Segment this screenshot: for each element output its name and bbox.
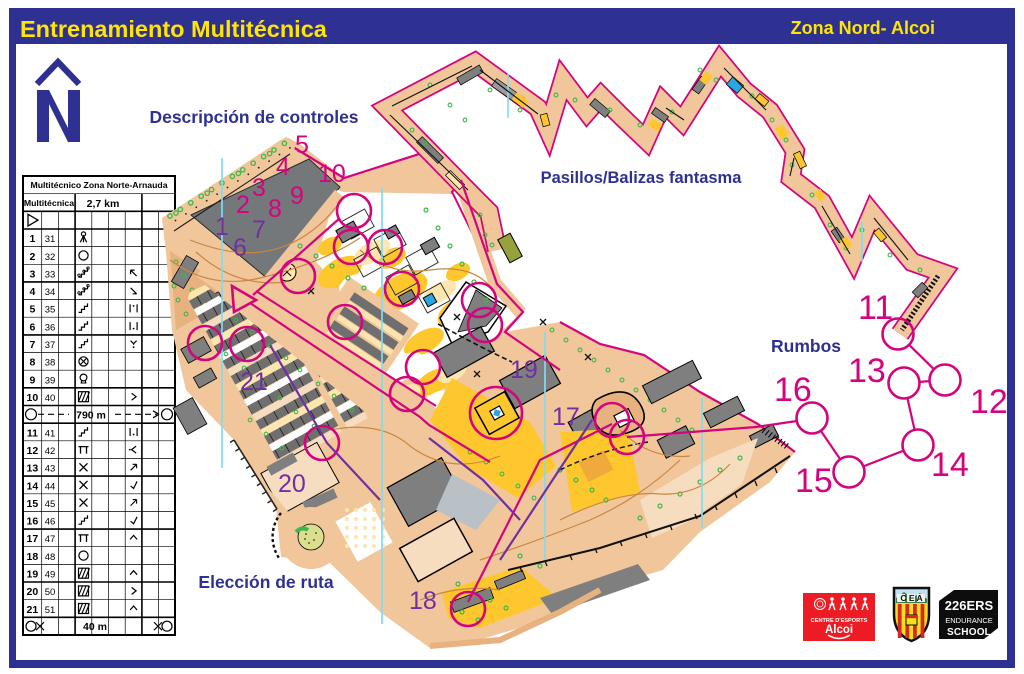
- svg-text:34: 34: [45, 287, 56, 298]
- svg-text:47: 47: [45, 534, 56, 545]
- svg-text:Elección de ruta: Elección de ruta: [198, 572, 333, 592]
- svg-text:3: 3: [29, 268, 35, 280]
- svg-text:Rumbos: Rumbos: [771, 336, 841, 356]
- svg-text:12: 12: [27, 445, 39, 457]
- svg-text:226ERS: 226ERS: [945, 598, 994, 613]
- svg-text:31: 31: [45, 234, 56, 245]
- svg-text:39: 39: [45, 375, 56, 386]
- svg-text:1: 1: [215, 213, 229, 241]
- svg-text:41: 41: [45, 428, 56, 439]
- svg-text:40 m: 40 m: [83, 621, 107, 633]
- svg-text:2: 2: [236, 191, 250, 219]
- svg-text:37: 37: [45, 340, 56, 351]
- svg-text:32: 32: [45, 252, 56, 263]
- svg-text:15: 15: [795, 462, 833, 500]
- svg-text:40: 40: [45, 393, 56, 404]
- svg-text:Entrenamiento Multitécnica: Entrenamiento Multitécnica: [20, 16, 328, 42]
- svg-text:11: 11: [858, 289, 893, 327]
- svg-text:ENDURANCE: ENDURANCE: [945, 616, 993, 625]
- svg-text:2,7 km: 2,7 km: [87, 198, 120, 210]
- svg-text:45: 45: [45, 499, 56, 510]
- svg-text:20: 20: [27, 586, 39, 598]
- svg-text:10: 10: [27, 392, 39, 404]
- svg-text:42: 42: [45, 446, 56, 457]
- svg-text:Pasillos/Balizas fantasma: Pasillos/Balizas fantasma: [541, 169, 743, 187]
- svg-text:16: 16: [774, 371, 812, 409]
- svg-text:4: 4: [276, 153, 290, 181]
- svg-text:11: 11: [27, 427, 38, 439]
- svg-text:10: 10: [318, 160, 346, 188]
- svg-text:Descripción de controles: Descripción de controles: [149, 107, 358, 127]
- svg-text:7: 7: [29, 339, 35, 351]
- svg-text:19: 19: [27, 569, 39, 581]
- svg-text:43: 43: [45, 464, 56, 475]
- svg-text:36: 36: [45, 322, 56, 333]
- svg-text:21: 21: [27, 604, 39, 616]
- svg-text:20: 20: [278, 470, 306, 498]
- svg-text:9: 9: [290, 182, 304, 210]
- svg-text:35: 35: [45, 305, 56, 316]
- svg-text:8: 8: [268, 195, 282, 223]
- svg-text:6: 6: [233, 234, 247, 262]
- svg-text:Multitécnica: Multitécnica: [24, 198, 74, 208]
- svg-text:17: 17: [27, 533, 39, 545]
- svg-text:5: 5: [29, 304, 35, 316]
- svg-text:1: 1: [29, 233, 35, 245]
- svg-text:33: 33: [45, 269, 56, 280]
- svg-text:4: 4: [29, 286, 35, 298]
- svg-text:790 m: 790 m: [76, 409, 106, 421]
- svg-text:Alcoi: Alcoi: [825, 624, 853, 636]
- svg-text:17: 17: [552, 403, 580, 431]
- svg-text:14: 14: [27, 480, 39, 492]
- svg-text:15: 15: [27, 498, 39, 510]
- svg-text:38: 38: [45, 358, 56, 369]
- svg-text:5: 5: [295, 131, 309, 159]
- svg-text:SCHOOL: SCHOOL: [947, 627, 991, 638]
- svg-text:8: 8: [29, 357, 35, 369]
- svg-text:13: 13: [27, 463, 39, 475]
- svg-text:18: 18: [27, 551, 39, 563]
- svg-text:49: 49: [45, 570, 56, 581]
- svg-text:2: 2: [29, 251, 35, 263]
- svg-text:9: 9: [29, 374, 35, 386]
- svg-text:C E A: C E A: [900, 593, 922, 603]
- svg-text:48: 48: [45, 552, 56, 563]
- svg-text:46: 46: [45, 517, 56, 528]
- svg-text:13: 13: [848, 352, 886, 390]
- svg-text:14: 14: [931, 446, 969, 484]
- svg-text:Zona Nord- Alcoi: Zona Nord- Alcoi: [791, 18, 935, 38]
- svg-text:44: 44: [45, 481, 56, 492]
- svg-text:7: 7: [252, 216, 266, 244]
- svg-text:6: 6: [29, 321, 35, 333]
- svg-text:16: 16: [27, 516, 39, 528]
- svg-text:18: 18: [409, 587, 437, 615]
- svg-text:19: 19: [510, 356, 538, 384]
- svg-text:50: 50: [45, 587, 56, 598]
- svg-text:3: 3: [252, 174, 266, 202]
- svg-text:Multitécnico Zona Norte-Arnaud: Multitécnico Zona Norte-Arnauda: [30, 180, 167, 190]
- svg-text:51: 51: [45, 605, 56, 616]
- svg-text:21: 21: [240, 368, 268, 396]
- svg-text:12: 12: [970, 383, 1008, 421]
